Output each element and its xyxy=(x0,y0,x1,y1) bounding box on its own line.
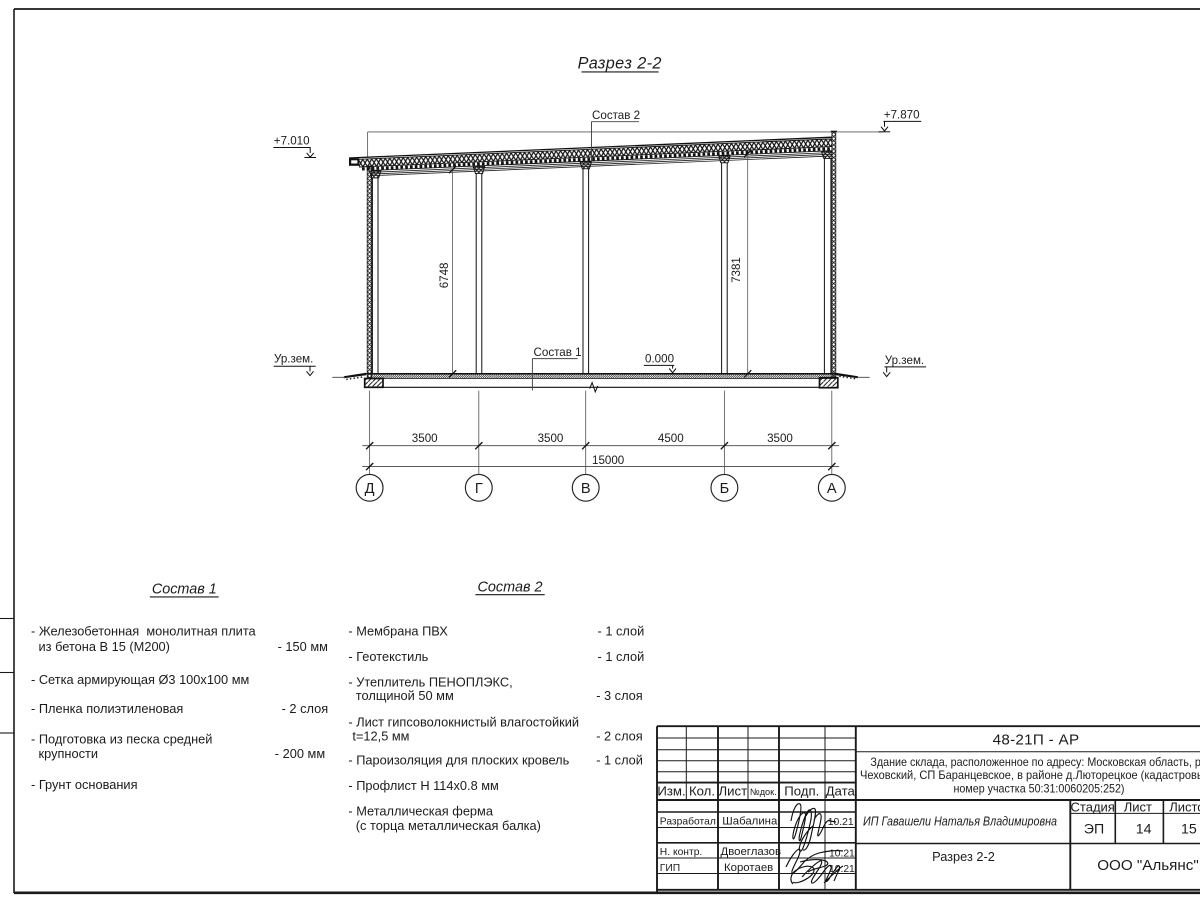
svg-text:Б: Б xyxy=(720,481,730,497)
svg-text:t=12,5 мм: t=12,5 мм xyxy=(352,729,409,744)
svg-text:- Подготовка из песка средней: - Подготовка из песка средней xyxy=(31,732,212,747)
svg-text:- Пленка полиэтиленовая: - Пленка полиэтиленовая xyxy=(31,701,183,716)
svg-text:Состав 1: Состав 1 xyxy=(534,346,582,359)
svg-text:Листов: Листов xyxy=(1169,799,1200,814)
svg-text:Двоеглазов: Двоеглазов xyxy=(721,846,782,858)
svg-text:толщиной 50 мм: толщиной 50 мм xyxy=(356,688,454,703)
svg-text:ООО "Альянс": ООО "Альянс" xyxy=(1097,857,1199,874)
svg-text:- Грунт основания: - Грунт основания xyxy=(31,777,138,792)
svg-text:- Профлист Н 114х0.8 мм: - Профлист Н 114х0.8 мм xyxy=(348,778,498,793)
svg-text:Состав 2: Состав 2 xyxy=(478,579,543,595)
svg-text:- 150 мм: - 150 мм xyxy=(278,639,328,654)
svg-text:10.21: 10.21 xyxy=(828,817,854,828)
svg-text:Состав 2: Состав 2 xyxy=(592,109,640,122)
svg-text:крупности: крупности xyxy=(39,746,99,761)
svg-text:Здание склада, расположенное п: Здание склада, расположенное по адресу: … xyxy=(870,755,1200,769)
svg-text:- 3 слоя: - 3 слоя xyxy=(596,688,643,703)
svg-text:- Металлическая ферма: - Металлическая ферма xyxy=(348,804,493,819)
svg-text:4500: 4500 xyxy=(658,432,684,445)
svg-text:ЭП: ЭП xyxy=(1084,822,1104,838)
svg-text:Коротаев: Коротаев xyxy=(724,862,773,874)
svg-text:- Мембрана ПВХ: - Мембрана ПВХ xyxy=(348,624,448,639)
svg-text:из бетона В 15 (М200): из бетона В 15 (М200) xyxy=(39,639,170,654)
svg-text:- 2 слоя: - 2 слоя xyxy=(282,701,329,716)
svg-text:- 200 мм: - 200 мм xyxy=(275,746,325,761)
svg-text:Ур.зем.: Ур.зем. xyxy=(274,353,313,366)
svg-text:Разрез 2-2: Разрез 2-2 xyxy=(578,54,662,72)
svg-text:15: 15 xyxy=(1181,822,1197,838)
svg-text:- 2 слоя: - 2 слоя xyxy=(596,729,643,744)
svg-text:Шабалина: Шабалина xyxy=(722,816,778,828)
svg-text:Д: Д xyxy=(365,481,375,497)
svg-text:3500: 3500 xyxy=(538,432,564,445)
svg-text:+7.010: +7.010 xyxy=(274,135,310,148)
svg-text:Стадия: Стадия xyxy=(1071,799,1115,814)
svg-text:А: А xyxy=(827,481,837,497)
svg-text:- 1 слой: - 1 слой xyxy=(598,624,645,639)
svg-text:7381: 7381 xyxy=(730,257,743,283)
svg-text:номер участка 50:31:0060205:25: номер участка 50:31:0060205:252) xyxy=(954,781,1125,795)
svg-text:Н. контр.: Н. контр. xyxy=(660,847,703,858)
svg-text:- Лист гипсоволокнистый влагос: - Лист гипсоволокнистый влагостойкий xyxy=(348,715,579,730)
svg-text:- Геотекстиль: - Геотекстиль xyxy=(348,649,428,664)
svg-text:Состав 1: Состав 1 xyxy=(152,582,217,598)
svg-text:14: 14 xyxy=(1136,822,1152,838)
svg-text:Лист: Лист xyxy=(1124,799,1152,814)
svg-text:+7.870: +7.870 xyxy=(884,108,920,121)
svg-text:ИП Гавашели Наталья Владимиров: ИП Гавашели Наталья Владимировна xyxy=(863,813,1057,828)
svg-text:- Железобетонная монолитная п: - Железобетонная монолитная плита xyxy=(31,624,257,639)
svg-text:0.000: 0.000 xyxy=(645,352,674,365)
svg-text:ГИП: ГИП xyxy=(660,863,680,874)
svg-text:Подп.: Подп. xyxy=(784,783,819,798)
svg-text:Кол.: Кол. xyxy=(689,783,715,798)
svg-text:- 1 слой: - 1 слой xyxy=(598,649,645,664)
svg-text:№док.: №док. xyxy=(750,787,777,797)
svg-text:- Пароизоляция для плоских кро: - Пароизоляция для плоских кровель xyxy=(348,753,569,768)
svg-text:В: В xyxy=(581,481,591,497)
svg-text:Ур.зем.: Ур.зем. xyxy=(885,354,924,367)
svg-text:3500: 3500 xyxy=(767,432,793,445)
svg-text:Разработал: Разработал xyxy=(660,815,716,827)
svg-text:Чеховский, СП Баранцевское, в: Чеховский, СП Баранцевское, в районе д.Л… xyxy=(860,768,1200,782)
svg-text:3500: 3500 xyxy=(412,432,438,445)
svg-text:Г: Г xyxy=(475,481,483,497)
svg-text:Изм.: Изм. xyxy=(657,783,685,798)
svg-text:48-21П - АР: 48-21П - АР xyxy=(993,732,1080,749)
svg-text:(с торца металлическая балка): (с торца металлическая балка) xyxy=(356,818,541,833)
svg-text:Дата: Дата xyxy=(826,783,856,798)
svg-text:6748: 6748 xyxy=(438,263,451,289)
svg-text:Лист: Лист xyxy=(718,783,747,798)
svg-text:15000: 15000 xyxy=(592,454,624,467)
svg-text:- 1 слой: - 1 слой xyxy=(596,753,643,768)
svg-text:Разрез 2-2: Разрез 2-2 xyxy=(932,849,995,864)
svg-text:- Сетка армирующая Ø3 100х100: - Сетка армирующая Ø3 100х100 мм xyxy=(31,672,249,687)
